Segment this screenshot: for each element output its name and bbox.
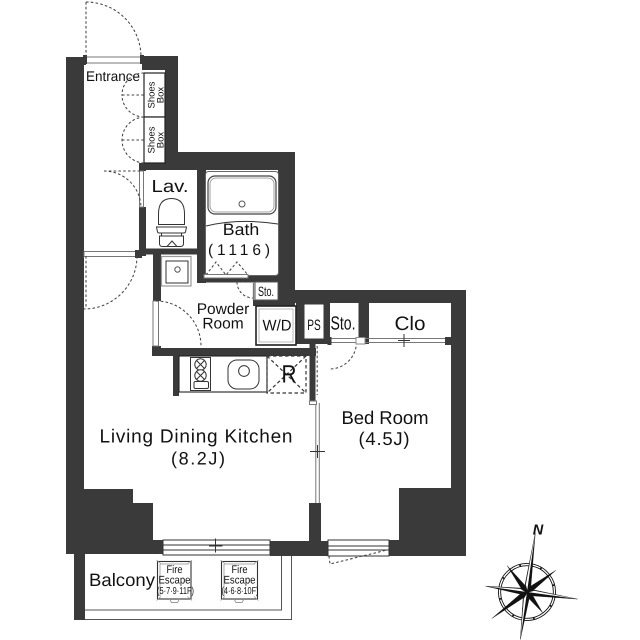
- svg-text:(8.2J): (8.2J): [171, 449, 225, 469]
- svg-text:Clo: Clo: [395, 313, 426, 335]
- svg-text:Box: Box: [156, 87, 167, 104]
- svg-text:(5·7·9·11F): (5·7·9·11F): [157, 586, 194, 597]
- svg-text:Bath: Bath: [223, 221, 260, 239]
- svg-text:Living Dining Kitchen: Living Dining Kitchen: [100, 427, 293, 448]
- svg-text:W/D: W/D: [263, 318, 292, 335]
- svg-text:Entrance: Entrance: [86, 68, 140, 84]
- svg-text:Box: Box: [156, 132, 167, 149]
- svg-text:(4·6·8·10F): (4·6·8·10F): [222, 586, 259, 597]
- svg-text:(4.5J): (4.5J): [359, 428, 410, 449]
- svg-text:Balcony: Balcony: [89, 570, 155, 590]
- svg-text:(1116): (1116): [208, 242, 270, 259]
- svg-text:Sto.: Sto.: [331, 314, 356, 335]
- svg-text:N: N: [533, 523, 544, 539]
- svg-text:Sto.: Sto.: [258, 284, 274, 299]
- svg-text:Escape: Escape: [224, 575, 256, 587]
- svg-text:Bed Room: Bed Room: [342, 407, 429, 428]
- svg-text:R: R: [282, 361, 297, 389]
- svg-text:PS: PS: [307, 317, 321, 334]
- svg-text:Lav.: Lav.: [152, 176, 189, 196]
- svg-text:Escape: Escape: [159, 575, 191, 587]
- svg-text:Room: Room: [202, 316, 243, 333]
